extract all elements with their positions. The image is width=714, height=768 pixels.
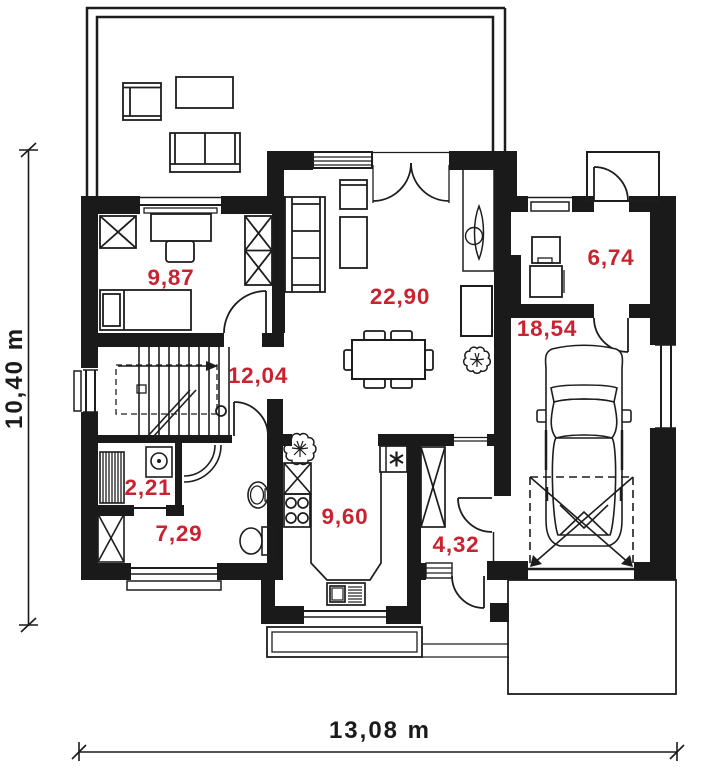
svg-text:18,54: 18,54 [517,316,577,341]
svg-text:6,74: 6,74 [588,245,635,270]
svg-text:2,21: 2,21 [125,475,172,500]
svg-text:9,87: 9,87 [148,265,195,290]
svg-text:13,08 m: 13,08 m [329,717,431,744]
svg-text:4,32: 4,32 [433,532,480,557]
svg-text:22,90: 22,90 [370,284,430,309]
svg-text:9,60: 9,60 [322,504,369,529]
svg-text:7,29: 7,29 [156,521,203,546]
svg-text:12,04: 12,04 [228,363,288,388]
svg-text:10,40 m: 10,40 m [1,327,28,429]
